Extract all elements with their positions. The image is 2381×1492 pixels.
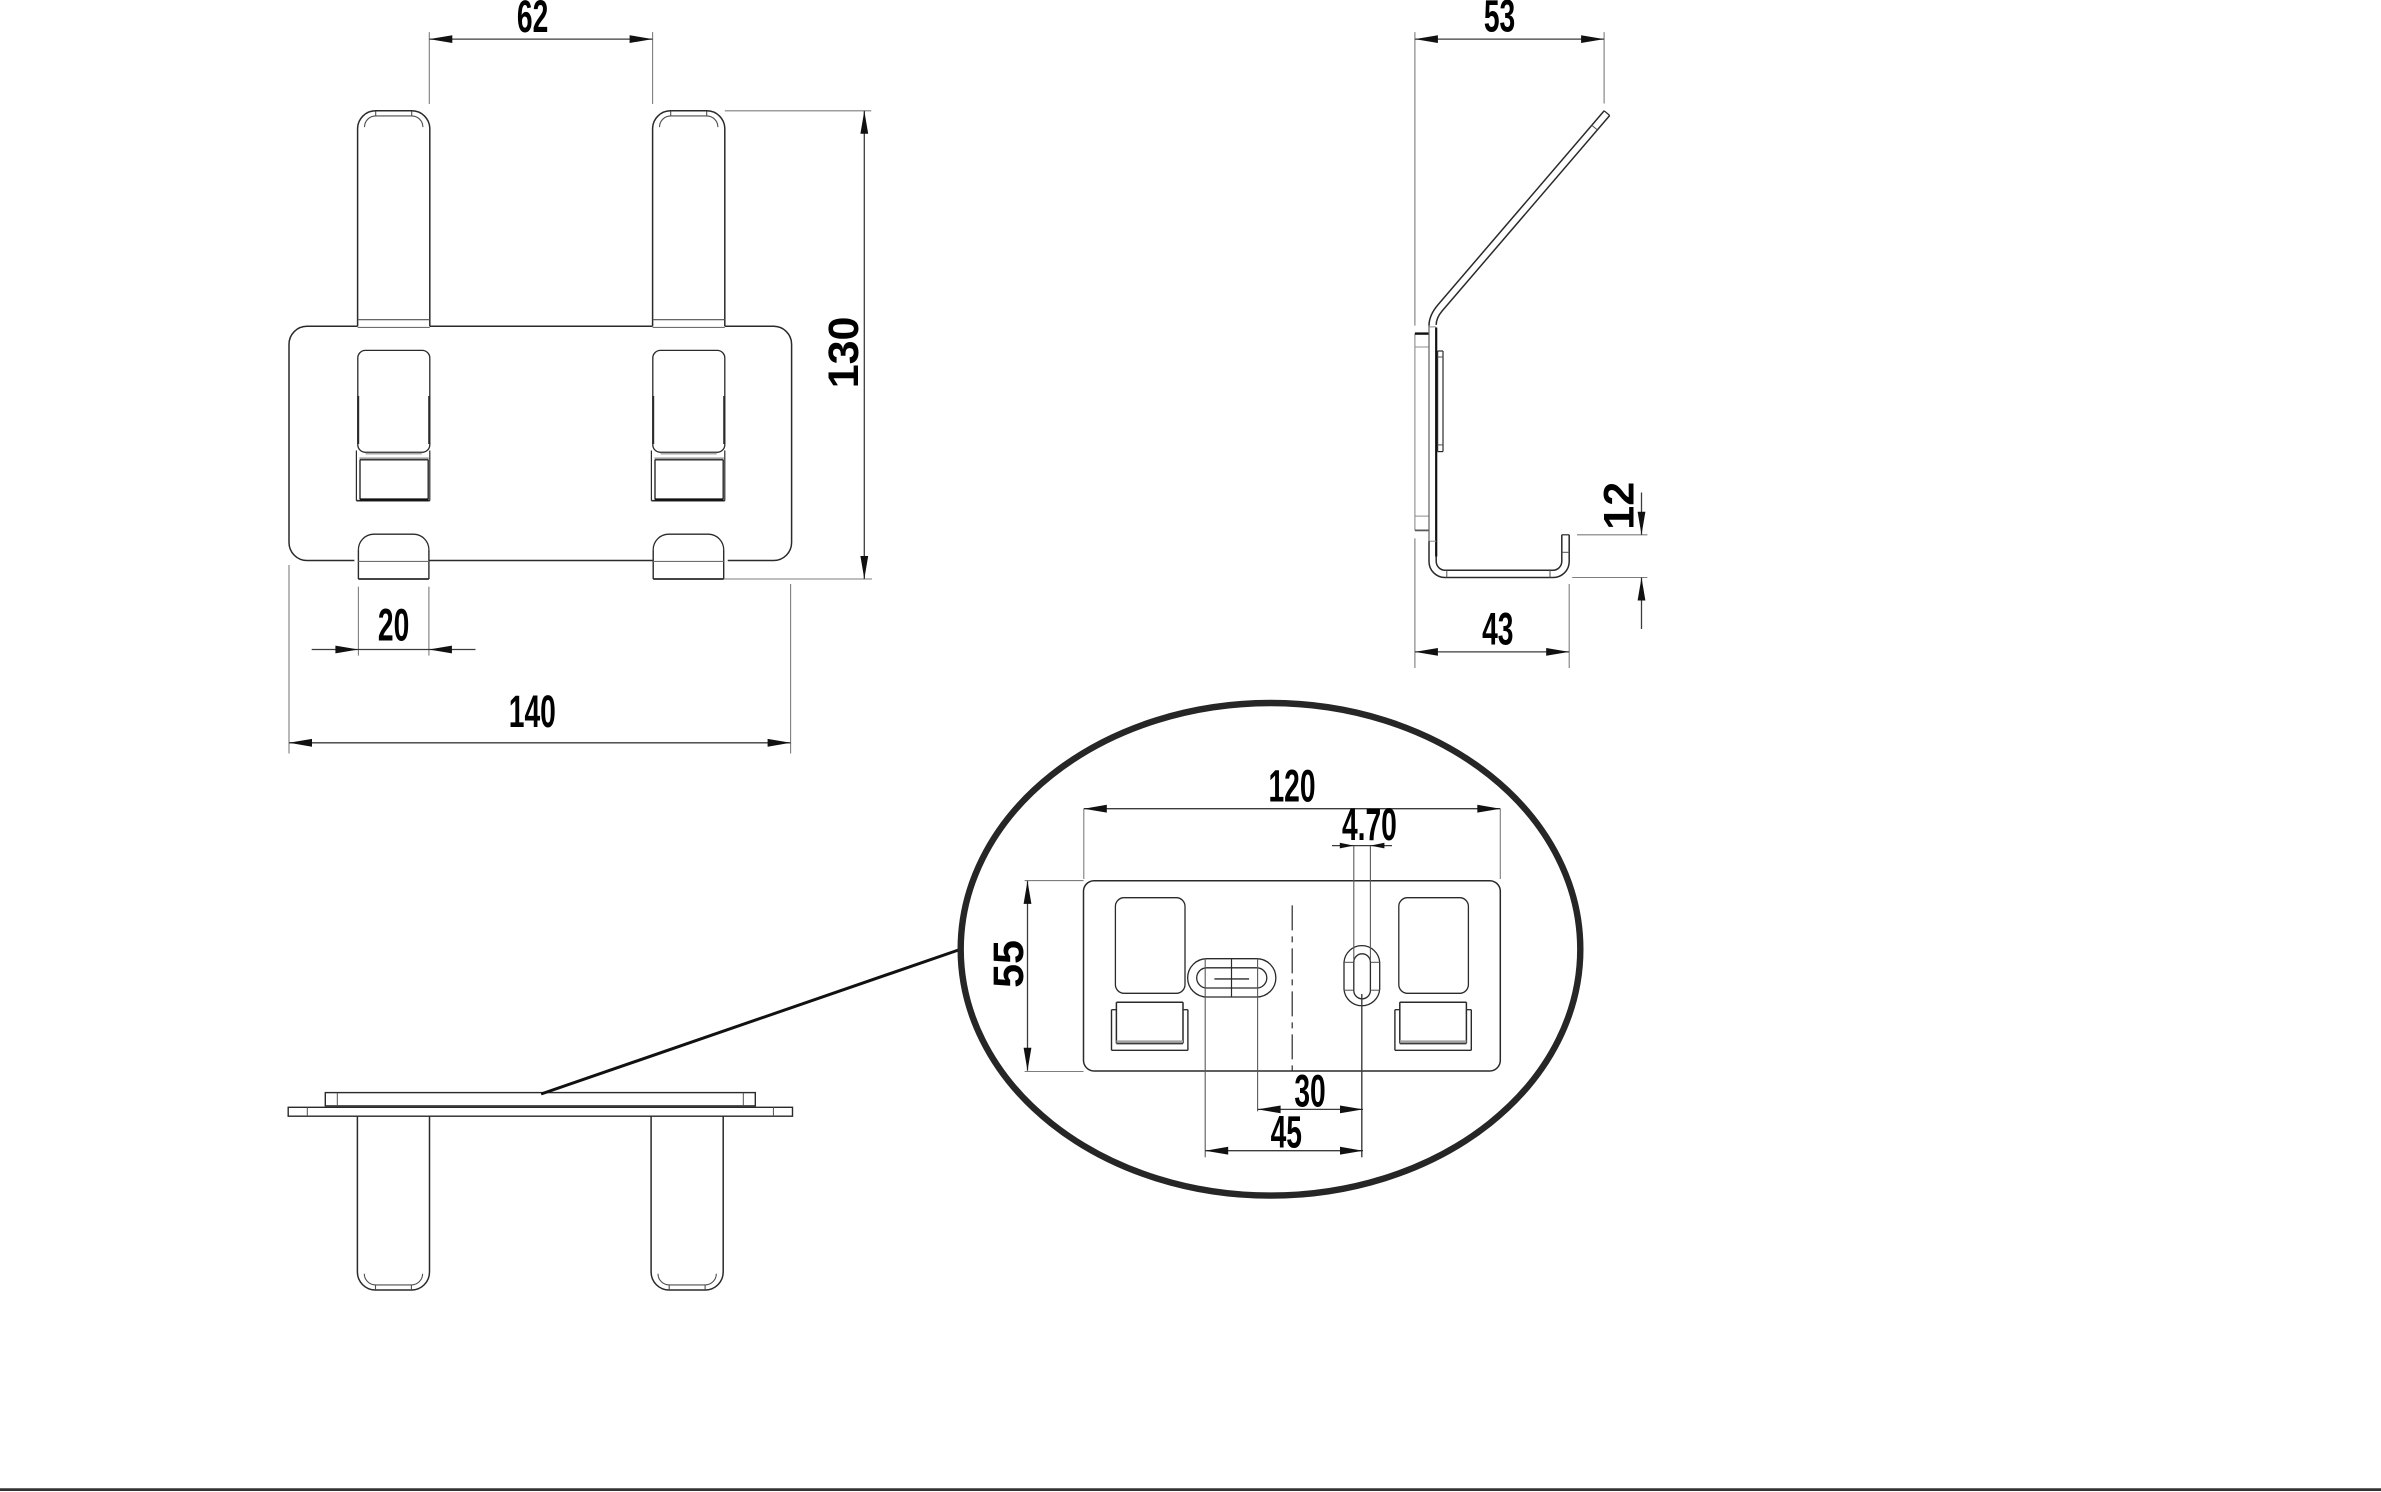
- svg-text:20: 20: [378, 600, 409, 650]
- svg-text:140: 140: [509, 686, 556, 736]
- svg-text:12: 12: [1595, 482, 1643, 530]
- svg-text:120: 120: [1268, 761, 1315, 811]
- svg-text:130: 130: [820, 317, 868, 389]
- svg-text:43: 43: [1482, 604, 1513, 654]
- svg-text:55: 55: [985, 940, 1033, 988]
- svg-text:4.70: 4.70: [1342, 799, 1397, 849]
- svg-text:62: 62: [517, 0, 548, 41]
- svg-text:53: 53: [1484, 0, 1515, 41]
- svg-text:45: 45: [1271, 1107, 1302, 1157]
